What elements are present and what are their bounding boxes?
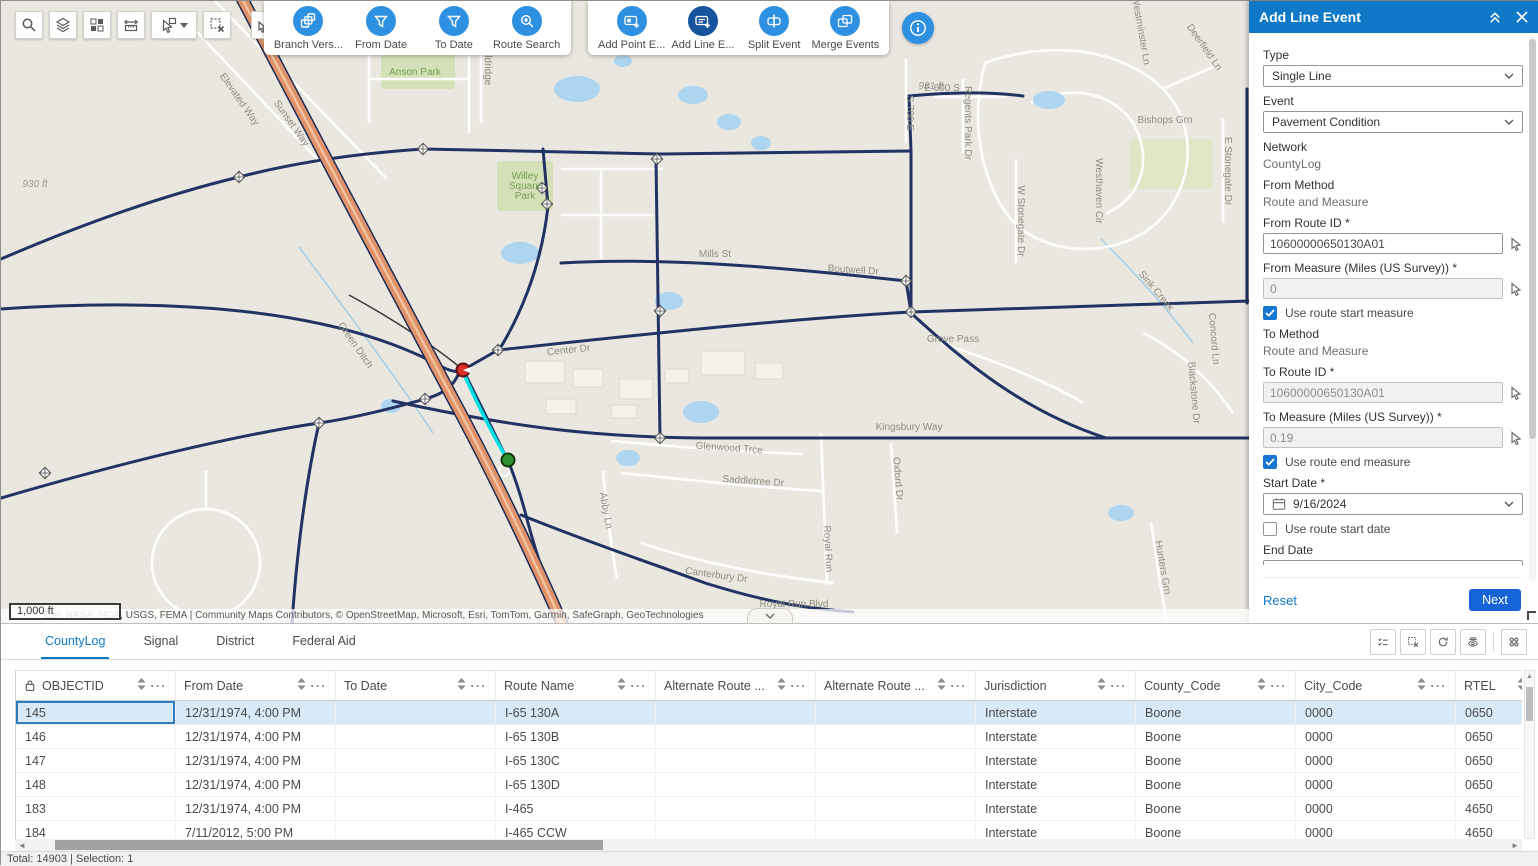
column-menu-icon[interactable]: ··· — [951, 679, 968, 693]
map-label: E 600 S — [924, 83, 960, 94]
creeks — [299, 239, 1193, 433]
table-cell[interactable]: 7/11/2012, 5:00 PM — [176, 821, 336, 839]
building-footprints — [525, 351, 783, 418]
from-date-label: From Date — [355, 39, 407, 51]
select-tool-icon[interactable] — [151, 11, 197, 39]
sort-icon[interactable] — [137, 678, 146, 693]
sort-icon[interactable] — [777, 678, 786, 693]
table-cell[interactable] — [656, 821, 816, 839]
network-label: Network — [1263, 140, 1523, 154]
use-route-start-date-checkbox[interactable]: Use route start date — [1263, 522, 1523, 536]
event-label: Event — [1263, 94, 1523, 108]
panel-header: Add Line Event — [1249, 1, 1538, 33]
refresh-icon[interactable] — [1430, 629, 1456, 655]
calendar-icon — [1272, 564, 1286, 565]
next-button[interactable]: Next — [1469, 589, 1521, 611]
table-cell[interactable] — [656, 701, 816, 724]
intersection-markers — [39, 143, 916, 478]
route-search-label: Route Search — [493, 39, 560, 51]
table-cell[interactable]: 0650 — [1456, 701, 1522, 724]
table-cell[interactable]: Interstate — [976, 821, 1136, 839]
branch-versions-icon — [293, 6, 323, 36]
column-menu-icon[interactable]: ··· — [311, 679, 328, 693]
table-cell[interactable]: 12/31/1974, 4:00 PM — [176, 773, 336, 796]
scrollbar-thumb[interactable] — [1529, 39, 1536, 439]
column-label: OBJECTID — [42, 679, 129, 693]
to-measure-label: To Measure (Miles (US Survey)) * — [1263, 410, 1523, 424]
scrollbar-thumb[interactable] — [55, 840, 603, 850]
reset-button[interactable]: Reset — [1263, 593, 1297, 608]
table-cell[interactable]: Interstate — [976, 749, 1136, 772]
scale-bar: 1,000 ft — [9, 603, 121, 620]
table-cell[interactable]: 12/31/1974, 4:00 PM — [176, 701, 336, 724]
panel-footer: Reset Next — [1263, 577, 1521, 611]
table-column-header[interactable]: RTEL ··· — [1456, 671, 1522, 700]
sort-icon[interactable] — [1417, 678, 1426, 693]
start-date-value: 9/16/2024 — [1293, 497, 1497, 511]
merge-events-button[interactable]: Merge Events — [810, 6, 881, 51]
to-date-button[interactable]: To Date — [418, 6, 490, 51]
event-edit-toolbar: Add Point E... Add Line E... Split Event… — [588, 1, 889, 55]
chevron-down-icon — [1504, 73, 1514, 79]
table-cell[interactable]: 0000 — [1296, 821, 1456, 839]
table-cell[interactable]: 12/31/1974, 4:00 PM — [176, 797, 336, 820]
info-icon[interactable] — [902, 12, 934, 44]
redundancy-marker-icon — [313, 417, 324, 428]
split-event-icon — [759, 6, 789, 36]
type-select[interactable]: Single Line — [1263, 65, 1523, 87]
tab-federal-aid[interactable]: Federal Aid — [288, 634, 359, 659]
table-row[interactable]: 14612/31/1974, 4:00 PMI-65 130BInterstat… — [16, 725, 1522, 749]
use-route-end-measure-label: Use route end measure — [1285, 455, 1410, 469]
split-event-label: Split Event — [748, 39, 801, 51]
branch-versions-button[interactable]: Branch Vers... — [272, 6, 344, 51]
use-route-start-measure-checkbox[interactable]: Use route start measure — [1263, 306, 1523, 320]
route-search-button[interactable]: Route Search — [491, 6, 563, 51]
table-cell[interactable]: 4650 — [1456, 797, 1522, 820]
table-options-icon[interactable] — [1501, 629, 1527, 655]
panel-scrollbar[interactable] — [1529, 37, 1536, 581]
table-body: 14512/31/1974, 4:00 PMI-65 130AInterstat… — [16, 701, 1522, 839]
map-label: S 700 E — [904, 95, 915, 131]
start-date-picker[interactable]: 9/16/2024 — [1263, 493, 1523, 515]
from-date-button[interactable]: From Date — [345, 6, 417, 51]
event-select[interactable]: Pavement Condition — [1263, 111, 1523, 133]
table-cell[interactable] — [336, 749, 496, 772]
scroll-up-arrow[interactable]: ▲ — [1525, 673, 1534, 680]
chevron-down-icon — [180, 23, 188, 28]
map-label: Park — [515, 191, 537, 202]
use-route-end-measure-checkbox[interactable]: Use route end measure — [1263, 455, 1523, 469]
from-method-value: Route and Measure — [1263, 195, 1523, 209]
table-header-row: OBJECTID ··· From Date ··· To Date ··· R… — [16, 671, 1522, 701]
checkbox-checked-icon — [1263, 455, 1277, 469]
to-date-label: To Date — [435, 39, 473, 51]
add-line-event-button[interactable]: Add Line E... — [667, 6, 738, 51]
merge-events-icon — [830, 6, 860, 36]
start-date-label: Start Date * — [1263, 476, 1523, 490]
redundancy-marker-icon — [233, 171, 244, 182]
to-route-id-field[interactable] — [1263, 382, 1503, 403]
table-cell[interactable] — [336, 701, 496, 724]
from-method-label: From Method — [1263, 178, 1523, 192]
checkbox-unchecked-icon — [1263, 522, 1277, 536]
map-label: Elevated Way — [217, 71, 261, 128]
map-label: Anson Park — [389, 67, 442, 78]
table-row[interactable]: 14512/31/1974, 4:00 PMI-65 130AInterstat… — [16, 701, 1522, 725]
column-label: From Date — [184, 679, 289, 693]
table-cell[interactable]: Boone — [1136, 773, 1296, 796]
table-column-header[interactable]: Alternate Route ... ··· — [816, 671, 976, 700]
map-toolbar — [15, 11, 279, 39]
map-label: Westhaven Cir — [1093, 158, 1104, 224]
to-measure-field[interactable] — [1263, 427, 1503, 448]
table-cell[interactable]: Boone — [1136, 797, 1296, 820]
table-cell[interactable] — [816, 725, 976, 748]
measure-icon[interactable] — [117, 11, 145, 39]
table-cell[interactable]: Interstate — [976, 701, 1136, 724]
table-cell[interactable]: 12/31/1974, 4:00 PM — [176, 725, 336, 748]
event-select-value: Pavement Condition — [1272, 115, 1497, 129]
collapse-panel-icon[interactable] — [1487, 9, 1503, 25]
table-cell[interactable]: I-65 130B — [496, 725, 656, 748]
table-cell[interactable]: I-65 130D — [496, 773, 656, 796]
column-menu-icon[interactable]: ··· — [151, 679, 168, 693]
end-date-label: End Date — [1263, 543, 1523, 557]
map-label: Oxford Dr — [890, 457, 905, 502]
to-measure-marker[interactable] — [502, 454, 515, 467]
checkbox-checked-icon — [1263, 306, 1277, 320]
table-cell[interactable] — [336, 725, 496, 748]
add-line-event-panel: Add Line Event Type Single Line Event Pa… — [1249, 1, 1538, 623]
table-cell[interactable]: 0000 — [1296, 701, 1456, 724]
chevron-down-icon — [1504, 501, 1514, 507]
column-label: Jurisdiction — [984, 679, 1089, 693]
table-column-header[interactable]: OBJECTID ··· — [16, 671, 176, 700]
panel-body: Type Single Line Event Pavement Conditio… — [1249, 33, 1525, 565]
table-cell[interactable]: I-65 130C — [496, 749, 656, 772]
column-label: Alternate Route ... — [824, 679, 929, 693]
table-cell[interactable]: Boone — [1136, 725, 1296, 748]
table-status-bar: Total: 14903 | Selection: 1 — [1, 851, 1538, 866]
split-event-button[interactable]: Split Event — [739, 6, 810, 51]
from-route-id-field[interactable] — [1263, 233, 1503, 254]
table-cell[interactable]: 0000 — [1296, 749, 1456, 772]
map-label: Green Ditch — [335, 321, 375, 371]
column-label: City_Code — [1304, 679, 1409, 693]
table-row[interactable]: 14712/31/1974, 4:00 PMI-65 130CInterstat… — [16, 749, 1522, 773]
table-row[interactable]: 1847/11/2012, 5:00 PMI-465 CCWInterstate… — [16, 821, 1522, 839]
use-route-start-measure-label: Use route start measure — [1285, 306, 1414, 320]
merge-events-label: Merge Events — [811, 39, 879, 51]
column-menu-icon[interactable]: ··· — [1271, 679, 1288, 693]
map-label: W Stonegate Dr — [1015, 185, 1026, 257]
selection-toolbar: Branch Vers... From Date To Date Route S… — [264, 1, 571, 55]
table-cell[interactable] — [656, 725, 816, 748]
table-column-header[interactable]: To Date ··· — [336, 671, 496, 700]
map-label: Boutwell Dr — [827, 263, 879, 278]
table-column-header[interactable]: Alternate Route ... ··· — [656, 671, 816, 700]
column-menu-icon[interactable]: ··· — [471, 679, 488, 693]
to-measure-map-pick-icon[interactable] — [1509, 431, 1523, 445]
layers-icon[interactable] — [49, 11, 77, 39]
table-vertical-scrollbar[interactable]: ▲ — [1524, 670, 1535, 839]
map-canvas[interactable]: Elevated WaySunset WayAnson ParkWilleySq… — [1, 1, 1249, 623]
table-cell[interactable]: Boone — [1136, 821, 1296, 839]
column-label: Alternate Route ... — [664, 679, 769, 693]
branch-versions-label: Branch Vers... — [274, 39, 343, 51]
table-cell[interactable] — [656, 749, 816, 772]
table-cell[interactable]: I-465 CCW — [496, 821, 656, 839]
table-cell[interactable]: 184 — [16, 821, 176, 839]
table-cell[interactable]: I-465 — [496, 797, 656, 820]
table-cell[interactable] — [336, 821, 496, 839]
panel-title: Add Line Event — [1259, 9, 1475, 25]
from-route-id-label: From Route ID * — [1263, 216, 1523, 230]
table-cell[interactable]: Boone — [1136, 701, 1296, 724]
calendar-icon — [1272, 497, 1286, 511]
table-column-header[interactable]: Jurisdiction ··· — [976, 671, 1136, 700]
table-cell[interactable]: 0000 — [1296, 797, 1456, 820]
map-label: Concord Ln — [1206, 313, 1221, 365]
panel-resize-corner[interactable] — [1527, 611, 1537, 621]
map-label: Kingsbury Way — [876, 422, 943, 433]
map-view[interactable]: Elevated WaySunset WayAnson ParkWilleySq… — [1, 1, 1249, 623]
table-cell[interactable]: 147 — [16, 749, 176, 772]
add-point-event-label: Add Point E... — [598, 39, 665, 51]
table-cell[interactable]: 183 — [16, 797, 176, 820]
add-point-event-icon — [617, 6, 647, 36]
route-search-icon — [512, 6, 542, 36]
sort-icon[interactable] — [1257, 678, 1266, 693]
table-horizontal-scrollbar[interactable]: ◄ ► — [15, 839, 1522, 851]
attribute-table: OBJECTID ··· From Date ··· To Date ··· R… — [15, 670, 1522, 839]
map-label: Bishops Grn — [1137, 115, 1192, 126]
map-label: Deerfield Ln — [1184, 22, 1224, 72]
table-cell[interactable]: I-65 130A — [496, 701, 656, 724]
redundancy-marker-icon — [419, 393, 430, 404]
from-measure-marker[interactable] — [457, 364, 472, 377]
column-label: To Date — [344, 679, 449, 693]
to-method-value: Route and Measure — [1263, 344, 1523, 358]
clear-table-selection-icon[interactable] — [1400, 629, 1426, 655]
table-cell[interactable]: 148 — [16, 773, 176, 796]
from-date-filter-icon — [366, 6, 396, 36]
from-measure-field[interactable] — [1263, 278, 1503, 299]
sort-icon[interactable] — [937, 678, 946, 693]
type-select-value: Single Line — [1272, 69, 1497, 83]
clear-selection-icon[interactable] — [203, 11, 231, 39]
table-cell[interactable]: Interstate — [976, 725, 1136, 748]
map-label: Glenwood Trce — [695, 441, 763, 457]
table-cell[interactable] — [816, 749, 976, 772]
map-label: Hunters Grn — [1152, 540, 1172, 596]
network-value: CountyLog — [1263, 157, 1523, 171]
map-label: Grove Pass — [927, 334, 979, 345]
close-icon[interactable] — [1515, 10, 1529, 24]
tab-signal[interactable]: Signal — [139, 634, 182, 659]
table-column-header[interactable]: County_Code ··· — [1136, 671, 1296, 700]
table-cell[interactable]: 0000 — [1296, 725, 1456, 748]
column-label: County_Code — [1144, 679, 1249, 693]
from-route-map-pick-icon[interactable] — [1509, 237, 1523, 251]
to-method-label: To Method — [1263, 327, 1523, 341]
column-menu-icon[interactable]: ··· — [1431, 679, 1448, 693]
route-end-vertex — [499, 466, 509, 476]
map-label: Westminster Ln — [1129, 1, 1152, 66]
add-line-event-icon — [688, 6, 718, 36]
table-cell[interactable] — [336, 773, 496, 796]
table-cell[interactable] — [816, 773, 976, 796]
table-status-text: Total: 14903 | Selection: 1 — [7, 853, 133, 865]
table-cell[interactable]: Interstate — [976, 797, 1136, 820]
lock-icon — [24, 679, 36, 692]
to-route-id-label: To Route ID * — [1263, 365, 1523, 379]
table-column-header[interactable]: From Date ··· — [176, 671, 336, 700]
end-date-placeholder: MM/DD/YYYY — [1293, 564, 1497, 565]
table-tabbar: CountyLog Signal District Federal Aid — [1, 624, 1538, 660]
event-editor-app: { "colors":{"accent":"#0f79c8","icon_blu… — [0, 0, 1538, 865]
park-areas — [381, 47, 1213, 211]
table-column-header[interactable]: Route Name ··· — [496, 671, 656, 700]
add-line-event-label: Add Line E... — [671, 39, 734, 51]
tab-countylog[interactable]: CountyLog — [41, 634, 109, 659]
map-label: Abby Ln — [597, 492, 614, 530]
scrollbar-thumb[interactable] — [1526, 687, 1533, 721]
column-label: RTEL — [1464, 679, 1509, 693]
add-point-event-button[interactable]: Add Point E... — [596, 6, 667, 51]
table-cell[interactable] — [336, 797, 496, 820]
interstate-highway — [237, 1, 567, 623]
sort-icon[interactable] — [1517, 678, 1523, 693]
map-label: E Stonegate Dr — [1222, 137, 1233, 206]
sort-icon[interactable] — [617, 678, 626, 693]
column-menu-icon[interactable]: ··· — [631, 679, 648, 693]
chevron-down-icon — [765, 613, 775, 619]
sort-icon[interactable] — [1097, 678, 1106, 693]
map-label: Mills St — [699, 249, 731, 260]
basemap-grid-icon[interactable] — [83, 11, 111, 39]
table-cell[interactable]: 0650 — [1456, 773, 1522, 796]
attribution-collapse-tab[interactable] — [747, 608, 793, 623]
table-column-header[interactable]: City_Code ··· — [1296, 671, 1456, 700]
map-label: Royal Run — [821, 525, 834, 572]
redundancy-marker-icon — [417, 143, 428, 154]
table-row[interactable]: 18312/31/1974, 4:00 PMI-465InterstateBoo… — [16, 797, 1522, 821]
table-cell[interactable]: Interstate — [976, 773, 1136, 796]
sort-icon[interactable] — [457, 678, 466, 693]
show-selected-records-icon[interactable] — [1370, 629, 1396, 655]
map-attribution: Esri, NASA, NGA, USGS, FEMA | Community … — [1, 609, 1249, 623]
from-measure-label: From Measure (Miles (US Survey)) * — [1263, 261, 1523, 275]
table-cell[interactable]: 4650 — [1456, 821, 1522, 839]
hide-fields-icon[interactable] — [1460, 629, 1486, 655]
table-cell[interactable] — [816, 797, 976, 820]
type-label: Type — [1263, 48, 1523, 62]
attribute-table-panel: CountyLog Signal District Federal Aid — [1, 623, 1538, 866]
table-cell[interactable] — [816, 701, 976, 724]
scroll-right-arrow[interactable]: ► — [1508, 839, 1522, 851]
to-date-filter-icon — [439, 6, 469, 36]
search-icon[interactable] — [15, 11, 43, 39]
from-measure-map-pick-icon[interactable] — [1509, 282, 1523, 296]
redundancy-marker-icon — [39, 467, 50, 478]
scale-label: 1,000 ft — [17, 605, 54, 617]
scroll-left-arrow[interactable]: ◄ — [15, 839, 29, 851]
table-cell[interactable]: 12/31/1974, 4:00 PM — [176, 749, 336, 772]
end-date-picker[interactable]: MM/DD/YYYY — [1263, 560, 1523, 565]
use-route-start-date-label: Use route start date — [1285, 522, 1390, 536]
map-label: Regents Park Dr — [962, 86, 973, 161]
map-label: Saddletree Dr — [722, 474, 785, 489]
sort-icon[interactable] — [297, 678, 306, 693]
table-toolbar — [1370, 629, 1527, 655]
tab-district[interactable]: District — [212, 634, 258, 659]
column-menu-icon[interactable]: ··· — [1111, 679, 1128, 693]
table-cell[interactable]: 0650 — [1456, 749, 1522, 772]
column-menu-icon[interactable]: ··· — [791, 679, 808, 693]
redundancy-marker-icon — [654, 432, 665, 443]
table-cell[interactable]: 0650 — [1456, 725, 1522, 748]
table-cell[interactable] — [816, 821, 976, 839]
table-cell[interactable]: 0000 — [1296, 773, 1456, 796]
map-label: 930 ft — [22, 179, 48, 190]
table-cell[interactable] — [656, 773, 816, 796]
table-cell[interactable] — [656, 797, 816, 820]
to-route-map-pick-icon[interactable] — [1509, 386, 1523, 400]
table-cell[interactable]: Boone — [1136, 749, 1296, 772]
table-cell[interactable]: 146 — [16, 725, 176, 748]
table-cell[interactable]: 145 — [16, 701, 176, 724]
toolbar-separator — [1493, 633, 1494, 651]
map-label: Sink Creek — [1136, 269, 1177, 314]
chevron-down-icon — [1504, 119, 1514, 125]
table-row[interactable]: 14812/31/1974, 4:00 PMI-65 130DInterstat… — [16, 773, 1522, 797]
column-label: Route Name — [504, 679, 609, 693]
